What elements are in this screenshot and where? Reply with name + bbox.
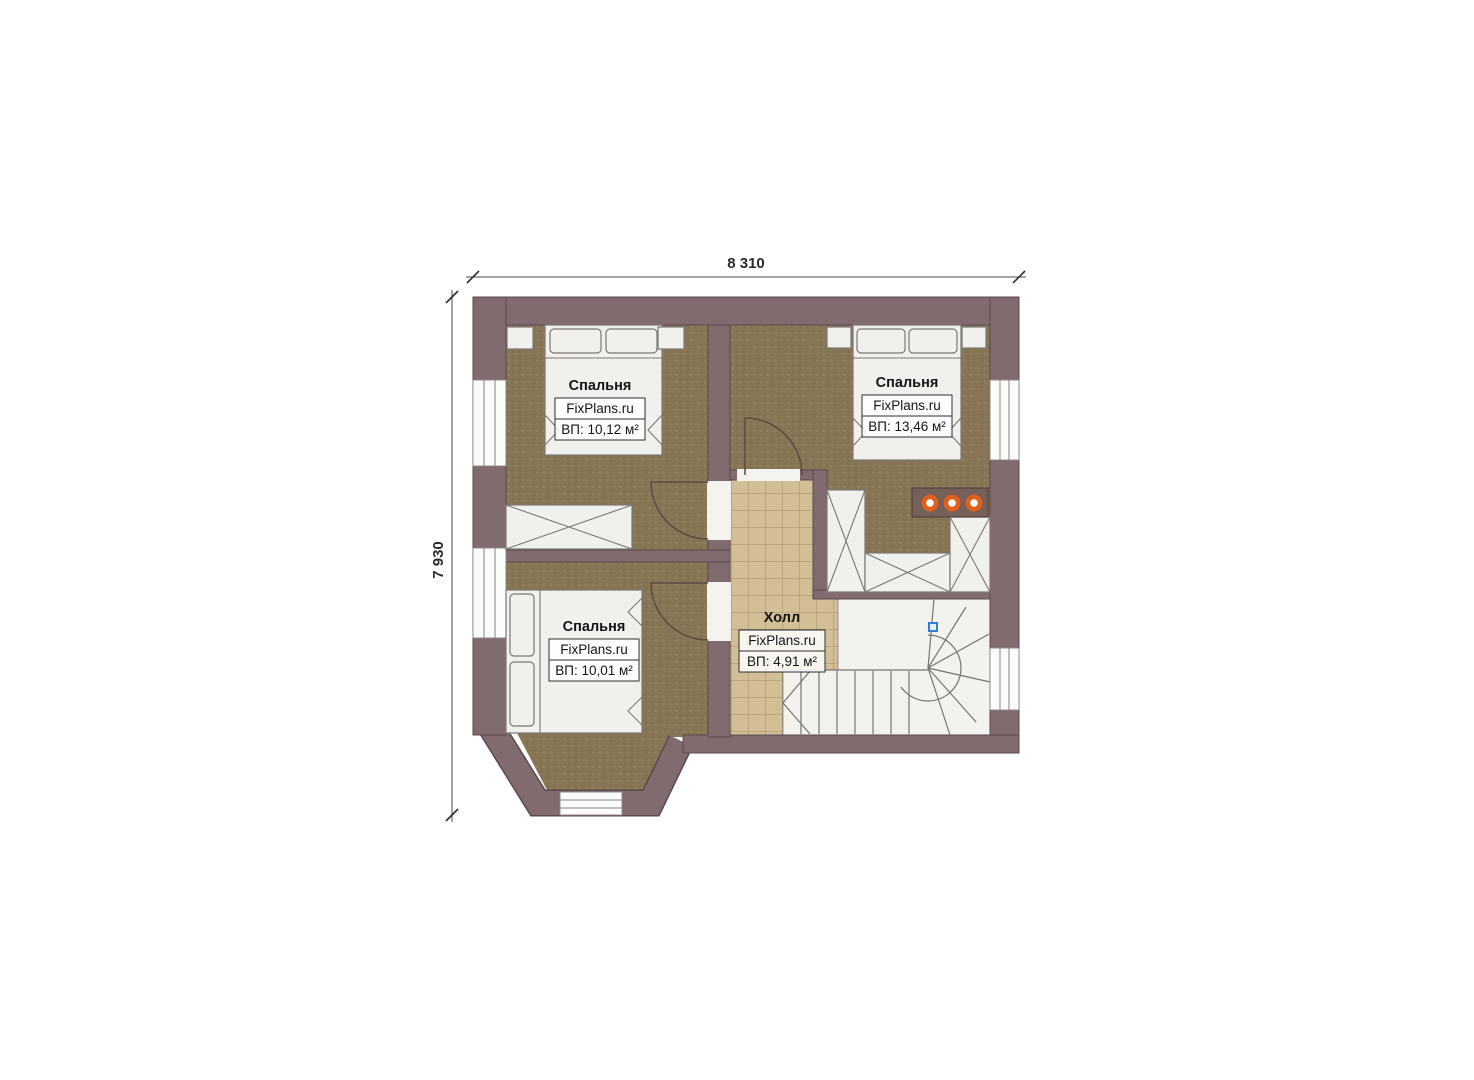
window-bay — [560, 792, 622, 815]
pillow — [510, 662, 534, 726]
watermark: FixPlans.ru — [560, 642, 628, 657]
watermark: FixPlans.ru — [873, 398, 941, 413]
room-area: ВП: 10,01 м² — [555, 663, 633, 678]
room-area: ВП: 10,12 м² — [561, 422, 639, 437]
floor-plan-page: Спальня FixPlans.ru ВП: 10,12 м² Спальня… — [0, 0, 1474, 1080]
stair-marker-icon — [929, 623, 937, 631]
wardrobe-right-c — [950, 517, 990, 592]
wardrobe-top-left — [506, 505, 632, 549]
dimension-left: 7 930 — [430, 290, 458, 822]
dimension-width-label: 8 310 — [727, 255, 765, 272]
window-right-upper — [990, 380, 1019, 460]
wall-hall-right — [813, 470, 827, 599]
dresser-with-knobs — [912, 488, 988, 517]
wardrobe-right-b — [865, 553, 950, 592]
wall-bottom — [683, 735, 1019, 753]
room-name: Холл — [764, 610, 800, 626]
pillow — [606, 329, 657, 353]
pillow — [909, 329, 957, 353]
room-area: ВП: 13,46 м² — [868, 419, 946, 434]
pillow — [550, 329, 601, 353]
window-left-upper — [473, 380, 506, 466]
wardrobe-right-a — [827, 490, 865, 592]
floor-plan: Спальня FixPlans.ru ВП: 10,12 м² Спальня… — [0, 0, 1474, 1080]
window-right-lower — [990, 648, 1019, 710]
nightstand — [507, 327, 533, 349]
wall-left — [473, 297, 506, 735]
nightstand — [962, 327, 986, 348]
room-name: Спальня — [563, 619, 626, 635]
pillow — [857, 329, 905, 353]
window-left-lower — [473, 548, 506, 638]
wall-top — [473, 297, 1019, 325]
watermark: FixPlans.ru — [566, 401, 634, 416]
dimension-height-label: 7 930 — [430, 541, 447, 579]
nightstand — [827, 327, 851, 348]
pillow — [510, 594, 534, 656]
dimension-top: 8 310 — [466, 255, 1026, 283]
nightstand — [658, 327, 684, 349]
watermark: FixPlans.ru — [748, 633, 816, 648]
room-area: ВП: 4,91 м² — [747, 654, 818, 669]
wall-partition-bedrooms-left — [496, 550, 730, 562]
room-name: Спальня — [876, 375, 939, 391]
bed-top-right — [853, 325, 961, 460]
room-name: Спальня — [569, 378, 632, 394]
